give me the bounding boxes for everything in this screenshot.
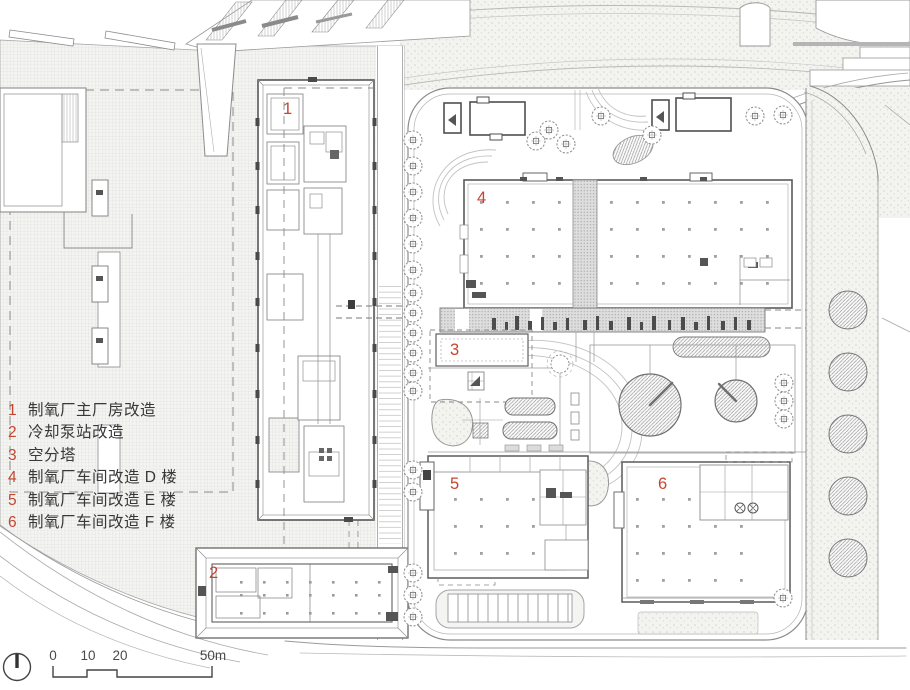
- scale-label-50m: 50m: [200, 648, 226, 663]
- horizontal-tank: [505, 398, 555, 415]
- green-band-right: [804, 86, 910, 640]
- legend-num: 1: [8, 402, 28, 420]
- right-plot: [408, 88, 808, 640]
- legend: 1 制氧厂主厂房改造 2 冷却泵站改造 3 空分塔 4 制氧厂车间改造 D 楼 …: [8, 398, 177, 532]
- legend-item-6: 6 制氧厂车间改造 F 楼: [8, 510, 177, 532]
- building-2: [196, 548, 408, 638]
- marker-5: 5: [450, 475, 459, 493]
- legend-label: 制氧厂主厂房改造: [28, 398, 156, 420]
- legend-item-4: 4 制氧厂车间改造 D 楼: [8, 465, 177, 487]
- scale-label-20: 20: [112, 648, 127, 663]
- legend-num: 2: [8, 424, 28, 442]
- legend-label: 制氧厂车间改造 E 楼: [28, 488, 176, 510]
- marker-4: 4: [477, 189, 486, 207]
- legend-num: 5: [8, 492, 28, 510]
- marker-2: 2: [209, 564, 218, 582]
- legend-item-3: 3 空分塔: [8, 443, 177, 465]
- legend-num: 4: [8, 469, 28, 487]
- legend-num: 3: [8, 447, 28, 465]
- building-5: [420, 456, 588, 585]
- legend-item-5: 5 制氧厂车间改造 E 楼: [8, 488, 177, 510]
- scale-label-0: 0: [49, 648, 57, 663]
- marker-1: 1: [283, 100, 292, 118]
- legend-label: 制氧厂车间改造 F 楼: [28, 510, 176, 532]
- legend-label: 空分塔: [28, 443, 76, 465]
- marker-3: 3: [450, 341, 459, 359]
- pier-blocks: [92, 180, 108, 364]
- building-4: [460, 173, 792, 308]
- horizontal-tank: [503, 422, 557, 439]
- legend-item-1: 1 制氧厂主厂房改造: [8, 398, 177, 420]
- legend-num: 6: [8, 514, 28, 532]
- entry-plaza: [638, 612, 758, 634]
- site-plan-page: 1 2 3 4 5 6 0 10 20 50m 1 制氧厂主厂房改造 2 冷却泵…: [0, 0, 910, 690]
- site-bottom-boundary: [285, 641, 906, 657]
- legend-label: 制氧厂车间改造 D 楼: [28, 465, 177, 487]
- marker-6: 6: [658, 475, 667, 493]
- north-arrow-icon: [4, 654, 31, 681]
- scale-label-10: 10: [80, 648, 95, 663]
- site-plan-drawing: 1 2 3 4 5 6 0 10 20 50m: [0, 0, 910, 690]
- parking-lot: [436, 590, 584, 628]
- legend-label: 冷却泵站改造: [28, 420, 124, 442]
- scale-bar: 0 10 20 50m: [49, 648, 226, 677]
- legend-item-2: 2 冷却泵站改造: [8, 420, 177, 442]
